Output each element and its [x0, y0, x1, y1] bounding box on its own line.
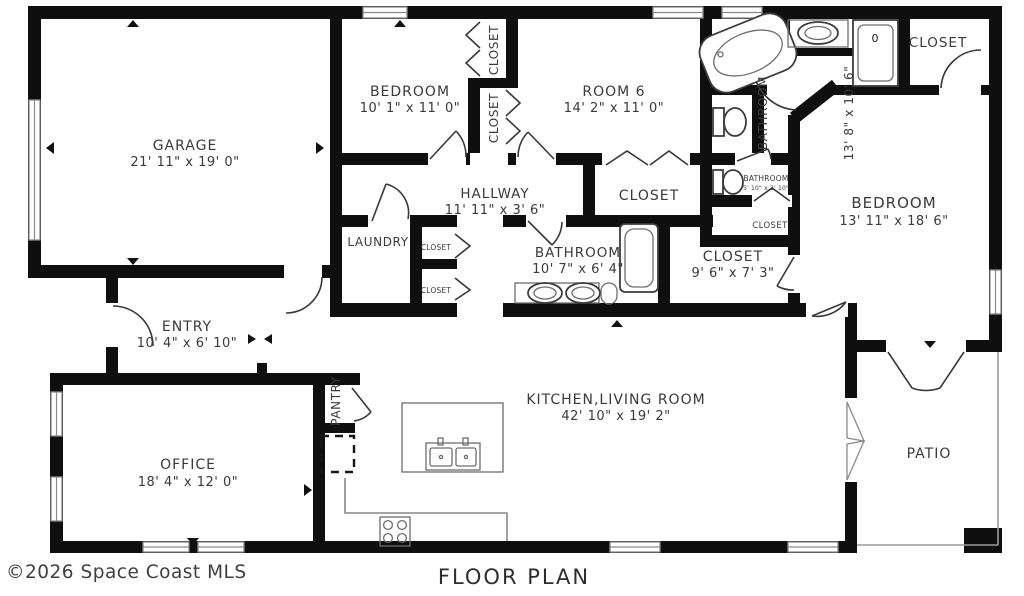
tr-closet-label: CLOSET — [909, 35, 967, 51]
small-bathroom-label: BATHROOM — [743, 174, 788, 183]
bathroom2-dims: 10' 7" x 6' 4" — [532, 262, 624, 277]
kitchen-living-dims: 42' 10" x 19' 2" — [561, 409, 670, 424]
window — [788, 542, 838, 552]
closet-a-bifold — [455, 234, 470, 258]
floor-plan-page: GARAGE 21' 11" x 19' 0" BEDROOM 10' 1" x… — [0, 0, 1024, 596]
linen-closet-label: CLOSET — [752, 221, 788, 231]
strip-closet-bottom-bifold — [506, 90, 520, 144]
french-doors — [888, 352, 964, 391]
bathroom2-vanity — [515, 283, 617, 304]
office-label: OFFICE — [160, 457, 216, 473]
window — [51, 392, 62, 436]
room-labels: GARAGE 21' 11" x 19' 0" BEDROOM 10' 1" x… — [130, 25, 967, 490]
hallway-dims: 11' 11" x 3' 6" — [445, 203, 545, 218]
shower — [853, 20, 898, 86]
pantry-door — [352, 388, 371, 421]
patio-label: PATIO — [907, 446, 952, 462]
entry-dims: 10' 4" x 6' 10" — [137, 336, 237, 351]
garage-dims: 21' 11" x 19' 0" — [130, 155, 239, 170]
refrigerator — [321, 436, 354, 472]
master-bedroom-label: BEDROOM — [851, 194, 936, 212]
garage-label: GARAGE — [153, 138, 218, 154]
small-bathroom-dims: 5' 10" x 2' 10" — [743, 185, 789, 192]
window — [990, 270, 1001, 314]
hall-closet-label: CLOSET — [619, 188, 679, 204]
window — [653, 7, 703, 18]
kitchen-island — [402, 403, 503, 472]
hallway-label: HALLWAY — [460, 186, 529, 202]
window — [198, 542, 244, 552]
kitchen-counter — [345, 478, 507, 541]
room6-dims: 14' 2" x 11' 0" — [564, 101, 664, 116]
copyright: ©2026 Space Coast MLS — [6, 562, 247, 583]
strip-closet-bottom-label: CLOSET — [487, 93, 501, 143]
garage-entry-door-arc — [286, 277, 322, 313]
closet-a-label: CLOSET — [421, 243, 452, 252]
window — [610, 542, 660, 552]
window — [722, 7, 762, 18]
master-bathroom-dims: 13' 8" x 10' 6" — [842, 66, 856, 161]
walkin-closet-label: CLOSET — [703, 249, 763, 265]
floor-plan-drawing: GARAGE 21' 11" x 19' 0" BEDROOM 10' 1" x… — [0, 0, 1024, 596]
master-bath-sink — [788, 20, 848, 47]
bedroom2-dims: 10' 1" x 11' 0" — [360, 101, 460, 116]
strip-closet-top-bifold — [466, 22, 480, 76]
closet-b-label: CLOSET — [421, 286, 452, 295]
window — [363, 7, 407, 18]
window — [143, 542, 189, 552]
entry-label: ENTRY — [162, 319, 212, 335]
kitchen-living-label: KITCHEN,LIVING ROOM — [526, 392, 705, 408]
shower-label: 0 — [872, 32, 879, 45]
diagonal-wall — [794, 85, 836, 118]
master-bathroom-label: BATHROOM — [756, 76, 770, 150]
small-bath-toilet — [713, 170, 743, 194]
garage-door — [29, 100, 40, 240]
bedroom2-label: BEDROOM — [370, 84, 450, 100]
office-dims: 18' 4" x 12' 0" — [138, 475, 238, 490]
tr-closet-door-arc — [941, 50, 981, 88]
closet-b-bifold — [455, 278, 470, 300]
laundry-label: LAUNDRY — [347, 235, 408, 249]
master-bedroom-dims: 13' 11" x 18' 6" — [839, 214, 948, 229]
bathroom2-tub — [620, 224, 658, 292]
master-toilet — [713, 108, 746, 136]
pantry-label: PANTRY — [329, 376, 343, 426]
strip-closet-top-label: CLOSET — [487, 25, 501, 75]
room6-label: ROOM 6 — [582, 84, 645, 100]
walkin-closet-dims: 9' 6" x 7' 3" — [692, 266, 775, 281]
window — [51, 477, 62, 521]
page-title: FLOOR PLAN — [438, 565, 590, 589]
bathroom2-label: BATHROOM — [535, 245, 621, 261]
